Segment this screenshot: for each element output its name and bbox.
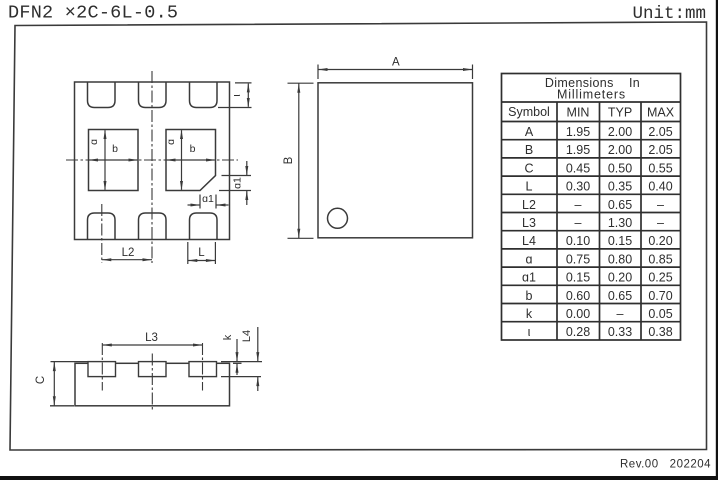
svg-text:L: L	[198, 247, 205, 259]
svg-text:ɑ: ɑ	[165, 139, 177, 145]
svg-text:0.20: 0.20	[648, 234, 672, 248]
svg-text:0.33: 0.33	[608, 325, 632, 339]
svg-text:–: –	[657, 216, 664, 230]
svg-text:0.65: 0.65	[608, 289, 632, 303]
svg-text:b: b	[190, 143, 196, 155]
svg-text:0.65: 0.65	[608, 198, 632, 212]
svg-text:TYP: TYP	[608, 106, 632, 120]
svg-text:0.45: 0.45	[566, 161, 590, 175]
svg-text:0.28: 0.28	[566, 325, 590, 339]
svg-text:Rev.00 202204: Rev.00 202204	[620, 459, 711, 471]
svg-text:0.10: 0.10	[566, 234, 590, 248]
svg-text:A: A	[525, 125, 534, 139]
svg-text:–: –	[575, 198, 582, 212]
svg-text:0.20: 0.20	[608, 271, 632, 285]
svg-text:b: b	[526, 289, 533, 303]
svg-text:2.05: 2.05	[648, 143, 672, 157]
svg-text:L2: L2	[122, 247, 135, 259]
svg-text:0.30: 0.30	[566, 180, 590, 194]
svg-text:A: A	[392, 57, 400, 69]
svg-text:ɑ1: ɑ1	[232, 177, 244, 189]
svg-text:L2: L2	[522, 198, 536, 212]
svg-text:0.05: 0.05	[648, 307, 672, 321]
svg-text:DFN2 ×2C-6L-0.5: DFN2 ×2C-6L-0.5	[8, 3, 178, 24]
svg-text:0.55: 0.55	[648, 161, 672, 175]
svg-text:B: B	[283, 156, 295, 164]
svg-text:L3: L3	[145, 332, 158, 344]
svg-text:k: k	[526, 307, 533, 321]
svg-text:0.40: 0.40	[648, 180, 672, 194]
svg-text:1.30: 1.30	[608, 216, 632, 230]
svg-text:0.15: 0.15	[566, 271, 590, 285]
svg-text:0.75: 0.75	[566, 252, 590, 266]
svg-text:Symbol: Symbol	[508, 105, 550, 119]
svg-text:MIN: MIN	[567, 106, 590, 120]
svg-text:C: C	[35, 376, 47, 384]
svg-text:2.00: 2.00	[608, 125, 632, 139]
svg-text:0.80: 0.80	[608, 252, 632, 266]
svg-text:B: B	[525, 143, 533, 157]
svg-text:0.60: 0.60	[566, 289, 590, 303]
svg-text:1.95: 1.95	[566, 125, 590, 139]
svg-text:0.15: 0.15	[608, 234, 632, 248]
svg-text:ɑ: ɑ	[88, 139, 100, 145]
svg-text:–: –	[575, 216, 582, 230]
svg-text:L3: L3	[522, 216, 536, 230]
svg-text:0.50: 0.50	[608, 161, 632, 175]
svg-text:ɑ1: ɑ1	[522, 271, 536, 285]
svg-text:–: –	[657, 198, 664, 212]
svg-text:2.05: 2.05	[648, 125, 672, 139]
svg-text:L4: L4	[522, 234, 536, 248]
svg-text:MAX: MAX	[647, 106, 675, 120]
svg-text:b: b	[112, 143, 118, 155]
svg-text:0.00: 0.00	[566, 307, 590, 321]
svg-text:C: C	[524, 161, 533, 175]
svg-text:1.95: 1.95	[566, 143, 590, 157]
svg-text:ι: ι	[528, 325, 531, 339]
svg-text:k: k	[222, 334, 234, 340]
svg-text:Unit:mm: Unit:mm	[633, 4, 707, 24]
svg-text:Millimeters: Millimeters	[557, 88, 626, 102]
svg-text:2.00: 2.00	[608, 143, 632, 157]
svg-text:0.35: 0.35	[608, 180, 632, 194]
svg-text:0.38: 0.38	[648, 325, 672, 339]
svg-text:L: L	[526, 180, 533, 194]
svg-text:ɑ1: ɑ1	[202, 193, 214, 205]
svg-text:0.70: 0.70	[648, 289, 672, 303]
svg-text:–: –	[617, 307, 624, 321]
svg-text:0.25: 0.25	[648, 271, 672, 285]
svg-text:0.85: 0.85	[648, 252, 672, 266]
svg-text:ɑ: ɑ	[526, 252, 533, 266]
svg-text:L4: L4	[241, 330, 253, 342]
